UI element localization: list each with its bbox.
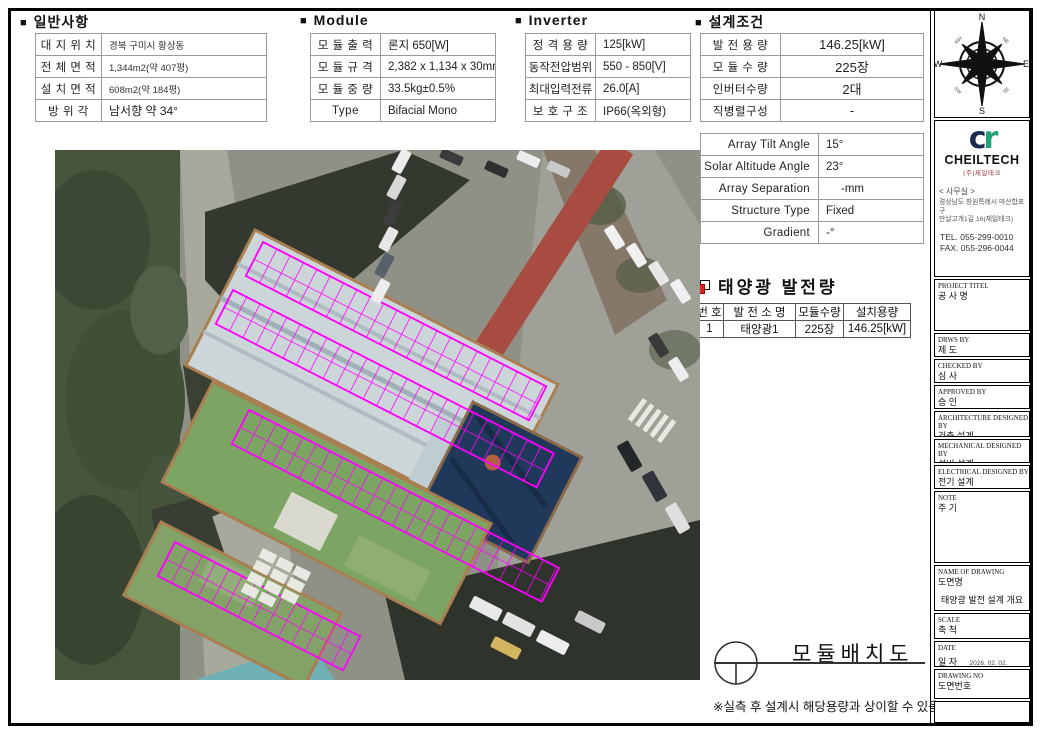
titleblock-drawing-no: DRAWING NO 도면번호 bbox=[934, 669, 1030, 699]
table-row: Array Tilt Angle15° bbox=[701, 134, 924, 156]
titleblock-mechanical: MECHANICAL DESIGNED BY 설비 설계 bbox=[934, 439, 1030, 463]
inverter-table: 정 격 용 량125[kW] 동작전압범위550 - 850[V] 최대입력전류… bbox=[525, 33, 691, 122]
compass-rose-icon: N E S W NW NE SE SW bbox=[935, 11, 1029, 116]
satellite-map bbox=[55, 150, 700, 680]
section-bullet-icon: ■ bbox=[515, 15, 523, 27]
table-row: 설 치 면 적608m2(약 184평) bbox=[36, 78, 267, 100]
compass-box: N E S W NW NE SE SW bbox=[934, 10, 1030, 118]
design-table-2: Array Tilt Angle15° Solar Altitude Angle… bbox=[700, 133, 924, 244]
svg-text:N: N bbox=[979, 12, 986, 22]
table-row: 모 듈 규 격2,382 x 1,134 x 30mm bbox=[311, 56, 496, 78]
svg-text:E: E bbox=[1023, 59, 1029, 69]
inverter-heading: ■Inverter bbox=[515, 12, 588, 28]
table-row: 직병렬구성- bbox=[701, 100, 924, 122]
titleblock-drawn-by: DRWS BY 제 도 bbox=[934, 333, 1030, 357]
module-heading: ■Module bbox=[300, 12, 369, 28]
module-table: 모 듈 출 력론지 650[W] 모 듈 규 격2,382 x 1,134 x … bbox=[310, 33, 496, 122]
table-row: 인버터수량2대 bbox=[701, 78, 924, 100]
table-row: Array Separation-mm bbox=[701, 178, 924, 200]
generation-table: 번 호 발 전 소 명 모듈수량 설치용량 1 태양광1 225장 146.25… bbox=[695, 303, 911, 338]
table-row: 모 듈 중 량33.5kg±0.5% bbox=[311, 78, 496, 100]
table-row: 모 듈 수 량225장 bbox=[701, 56, 924, 78]
svg-text:NE: NE bbox=[1001, 36, 1011, 46]
company-phone: TEL. 055-299-0010FAX. 055-296-0044 bbox=[935, 232, 1029, 254]
company-subname: (주)제일테크 bbox=[935, 167, 1029, 177]
svg-text:SW: SW bbox=[952, 86, 962, 96]
titleblock-project-title: PROJECT TITEL 공 사 명 bbox=[934, 279, 1030, 331]
company-address: 경상남도 창원특례시 마산합포구만날고개1길 16(제일테크) bbox=[935, 199, 1029, 225]
section-bullet-icon: ■ bbox=[20, 17, 28, 29]
section-bullet-icon: ■ bbox=[695, 17, 703, 29]
titleblock-electrical: ELECTRICAL DESIGNED BY 전기 설계 bbox=[934, 465, 1030, 489]
table-row: Structure TypeFixed bbox=[701, 200, 924, 222]
table-row: 정 격 용 량125[kW] bbox=[526, 34, 691, 56]
titleblock-scale: SCALE 축 척 bbox=[934, 613, 1030, 639]
titleblock-note: NOTE 주 기 bbox=[934, 491, 1030, 563]
titleblock-checked-by: CHECKED BY 심 사 bbox=[934, 359, 1030, 383]
drawing-name-value: 태양광 발전 설계 개요 bbox=[935, 593, 1029, 606]
drawing-title-symbol-icon bbox=[712, 640, 760, 688]
company-box: cr CHEILTECH (주)제일테크 < 사무실 > 경상남도 창원특례시 … bbox=[934, 120, 1030, 277]
titleblock-date: DATE 일 자 2026. 02. 02. bbox=[934, 641, 1030, 667]
titleblock-architecture: ARCHITECTURE DESIGNED BY 건축 설계 bbox=[934, 411, 1030, 437]
title-underline bbox=[714, 662, 925, 664]
design-table-1: 발 전 용 량146.25[kW] 모 듈 수 량225장 인버터수량2대 직병… bbox=[700, 33, 924, 122]
drawing-sheet: ■일반사항 대 지 위 치경북 구미시 황상동 전 체 면 적1,344m2(약… bbox=[0, 0, 1041, 734]
titleblock-empty-box bbox=[934, 701, 1030, 723]
generation-heading: 태양광 발전량 bbox=[695, 273, 838, 298]
date-value: 2026. 02. 02. bbox=[970, 660, 1008, 667]
company-name: CHEILTECH bbox=[935, 153, 1029, 167]
table-header-row: 번 호 발 전 소 명 모듈수량 설치용량 bbox=[696, 304, 911, 321]
office-label: < 사무실 > bbox=[935, 186, 1029, 197]
titleblock-name-of-drawing: NAME OF DRAWING 도면명 태양광 발전 설계 개요 bbox=[934, 565, 1030, 611]
table-row: 모 듈 출 력론지 650[W] bbox=[311, 34, 496, 56]
table-row: 발 전 용 량146.25[kW] bbox=[701, 34, 924, 56]
general-table: 대 지 위 치경북 구미시 황상동 전 체 면 적1,344m2(약 407평)… bbox=[35, 33, 267, 122]
svg-text:W: W bbox=[935, 59, 943, 69]
table-row: 보 호 구 조IP66(옥외형) bbox=[526, 100, 691, 122]
table-row: Gradient-° bbox=[701, 222, 924, 244]
design-heading: ■설계조건 bbox=[695, 12, 764, 32]
table-row: 1 태양광1 225장 146.25[kW] bbox=[696, 321, 911, 338]
table-row: 동작전압범위550 - 850[V] bbox=[526, 56, 691, 78]
general-heading: ■일반사항 bbox=[20, 12, 89, 32]
table-row: 대 지 위 치경북 구미시 황상동 bbox=[36, 34, 267, 56]
table-row: Solar Altitude Angle23° bbox=[701, 156, 924, 178]
table-row: 최대입력전류26.0[A] bbox=[526, 78, 691, 100]
table-row: TypeBifacial Mono bbox=[311, 100, 496, 122]
table-row: 방 위 각남서향 약 34° bbox=[36, 100, 267, 122]
titleblock-approved-by: APPROVED BY 승 인 bbox=[934, 385, 1030, 409]
table-row: 전 체 면 적1,344m2(약 407평) bbox=[36, 56, 267, 78]
svg-text:SE: SE bbox=[1002, 86, 1011, 95]
section-bullet-icon: ■ bbox=[300, 15, 308, 27]
sidebar-divider bbox=[930, 8, 931, 726]
company-logo: cr bbox=[935, 125, 1029, 153]
survey-note: ※실측 후 설계시 해당용량과 상이할 수 있음. bbox=[713, 696, 943, 715]
svg-text:S: S bbox=[979, 106, 985, 116]
